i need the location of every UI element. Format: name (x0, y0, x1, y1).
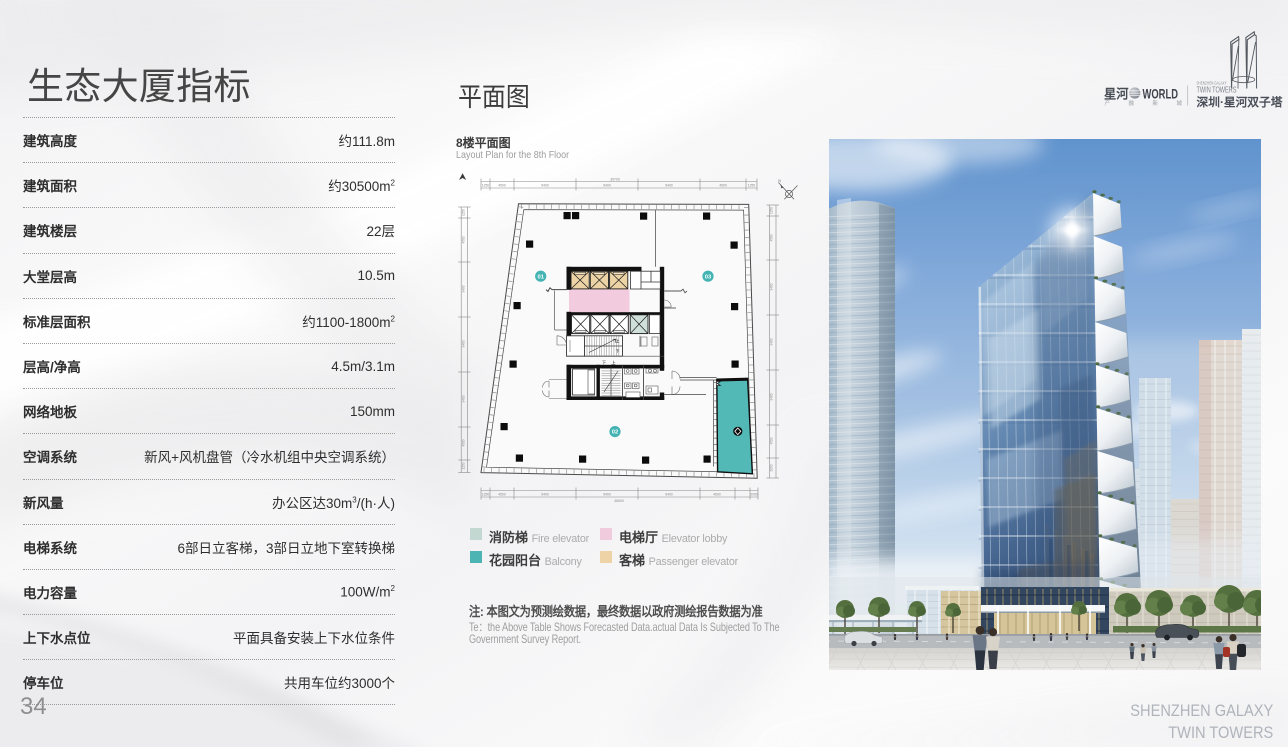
svg-text:9400: 9400 (462, 395, 466, 402)
svg-text:上: 上 (611, 359, 615, 365)
svg-text:4500: 4500 (713, 492, 721, 496)
svg-text:4500: 4500 (498, 492, 506, 496)
svg-text:9400: 9400 (770, 283, 774, 290)
svg-text:9400: 9400 (462, 340, 466, 347)
svg-text:9400: 9400 (462, 285, 466, 292)
svg-text:1250: 1250 (770, 207, 774, 214)
svg-text:9400: 9400 (665, 184, 673, 188)
svg-text:4500: 4500 (498, 184, 506, 188)
svg-text:1250: 1250 (462, 462, 466, 469)
svg-text:9400: 9400 (770, 393, 774, 400)
svg-text:4500: 4500 (719, 184, 727, 188)
svg-text:46500: 46500 (614, 499, 624, 503)
svg-text:WORLD: WORLD (1143, 86, 1179, 102)
svg-text:产融新城: 产融新城 (1105, 99, 1201, 107)
svg-text:02: 02 (612, 430, 618, 436)
svg-text:39700: 39700 (610, 177, 620, 181)
svg-text:9400: 9400 (603, 492, 611, 496)
svg-text:1250: 1250 (748, 184, 756, 188)
svg-text:9400: 9400 (770, 338, 774, 345)
svg-text:1250: 1250 (482, 492, 490, 496)
svg-text:9400: 9400 (541, 184, 549, 188)
svg-text:星河: 星河 (1104, 87, 1129, 102)
svg-text:4500: 4500 (462, 439, 466, 446)
svg-text:TWIN TOWERS: TWIN TOWERS (1197, 86, 1237, 95)
svg-text:4500: 4500 (462, 236, 466, 243)
svg-text:9400: 9400 (665, 492, 673, 496)
svg-text:9400: 9400 (603, 184, 611, 188)
svg-text:2050: 2050 (770, 464, 774, 471)
svg-text:1250: 1250 (482, 184, 490, 188)
svg-text:2050: 2050 (750, 492, 758, 496)
svg-text:1250: 1250 (462, 209, 466, 216)
svg-text:上: 上 (615, 338, 619, 344)
svg-text:N: N (778, 179, 781, 183)
svg-text:深圳·星河双子塔: 深圳·星河双子塔 (1197, 95, 1283, 109)
svg-text:4500: 4500 (770, 234, 774, 241)
svg-text:01: 01 (537, 274, 544, 280)
svg-text:4500: 4500 (770, 437, 774, 444)
svg-text:03: 03 (705, 274, 712, 280)
svg-text:9400: 9400 (541, 492, 549, 496)
